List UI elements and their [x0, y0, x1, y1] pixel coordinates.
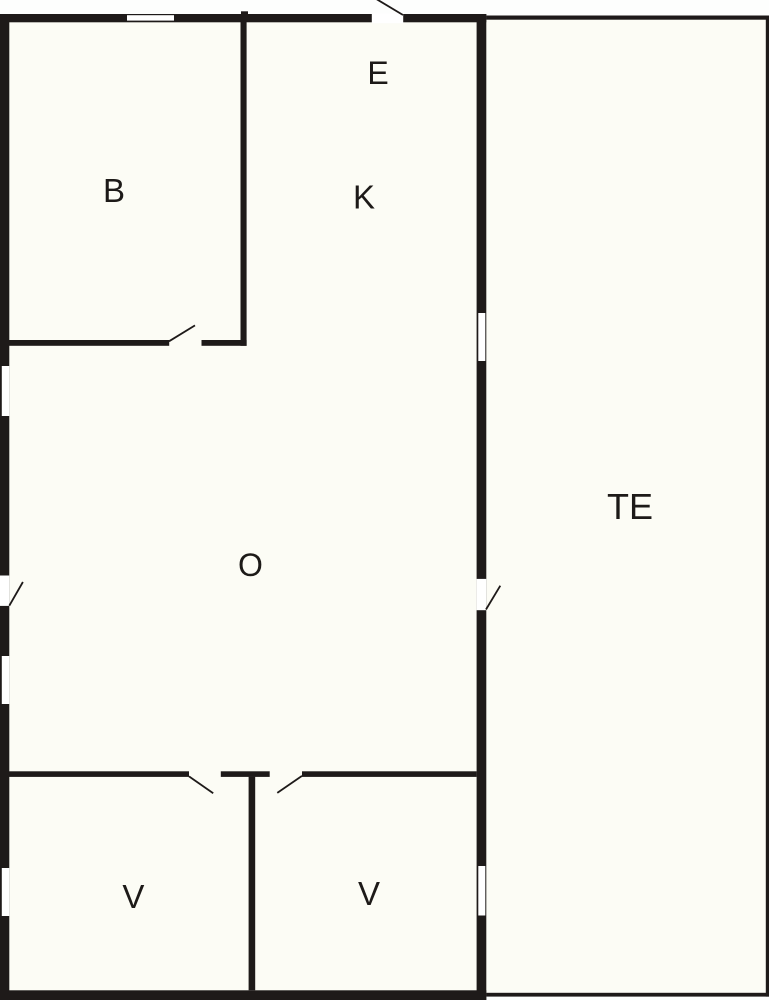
svg-text:K: K — [353, 179, 375, 216]
svg-text:B: B — [103, 172, 125, 209]
svg-text:V: V — [358, 875, 380, 912]
svg-text:O: O — [238, 547, 263, 583]
svg-text:TE: TE — [607, 486, 653, 527]
svg-text:E: E — [367, 55, 388, 91]
svg-text:V: V — [122, 878, 144, 915]
